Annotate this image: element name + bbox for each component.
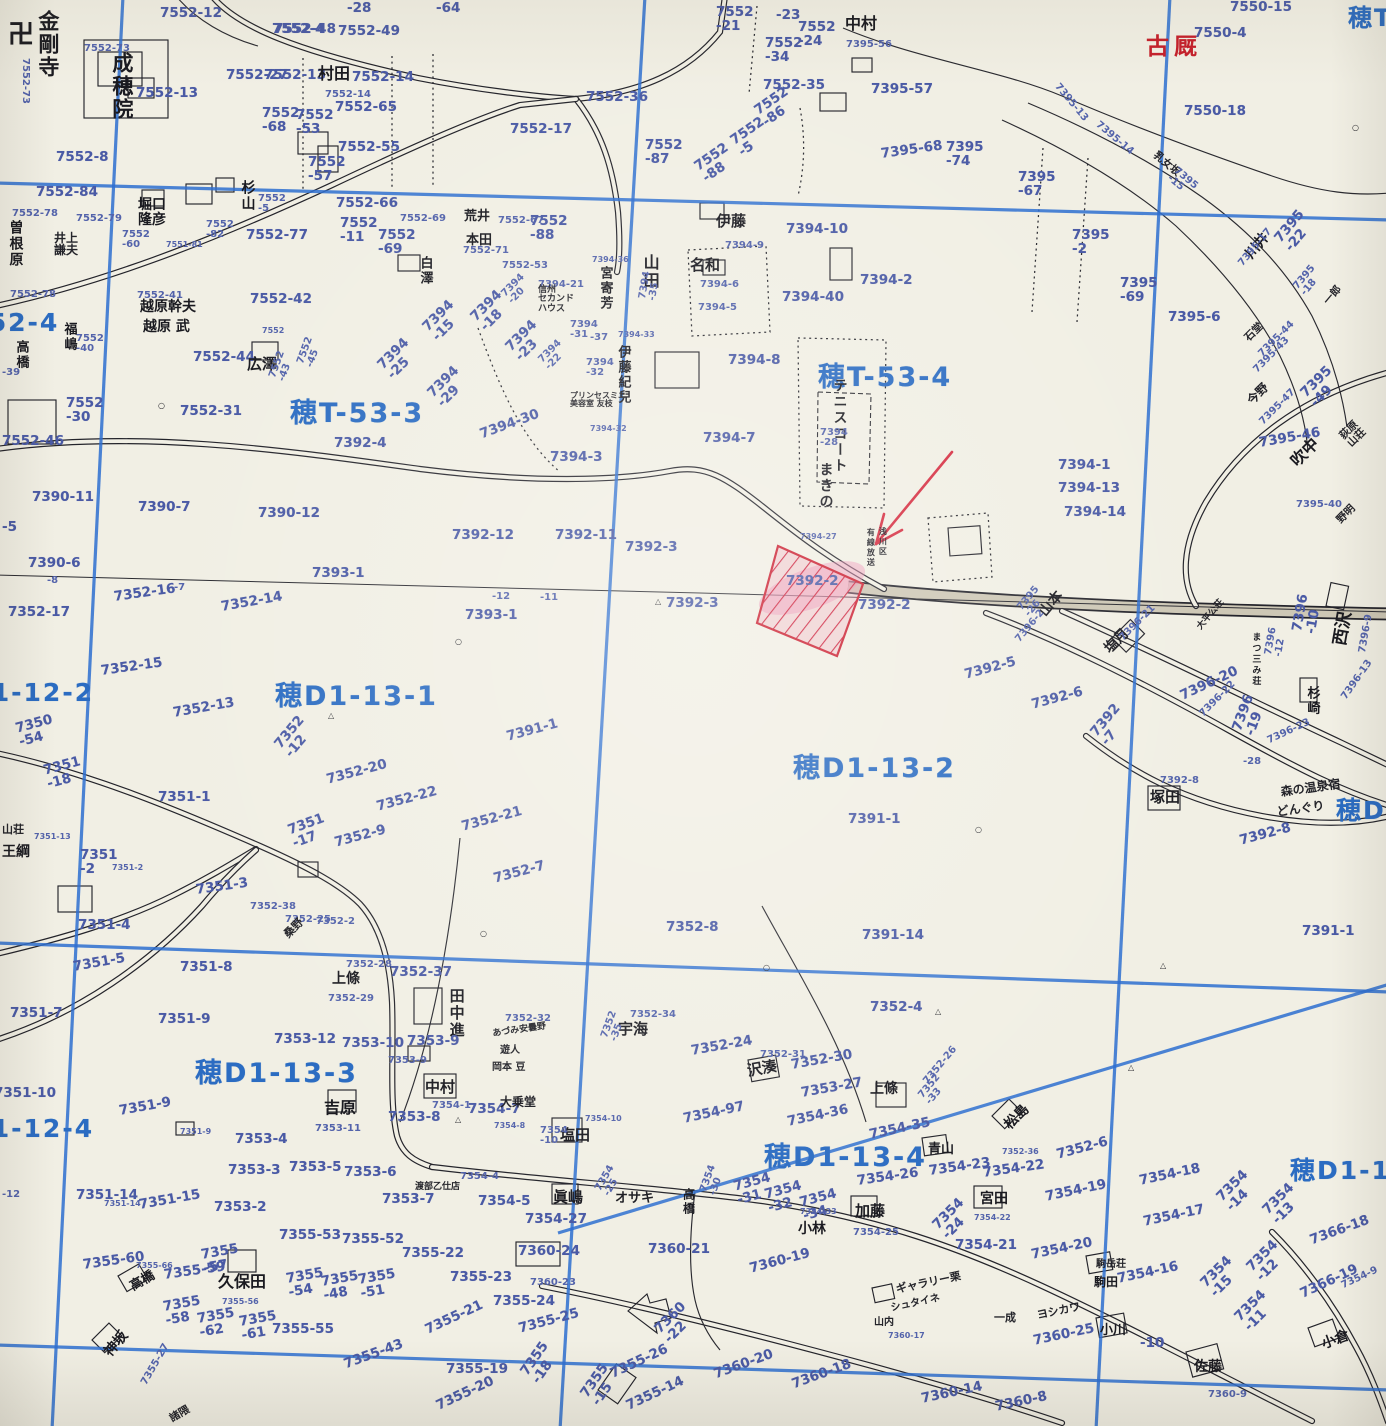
parcel-number-label: 7391-1 bbox=[505, 716, 559, 743]
owner-name-label: 浅川区 bbox=[878, 527, 886, 557]
cadastral-map: 卍金剛寺7552-73成穂院7552-737552-127552-47552-1… bbox=[0, 0, 1386, 1426]
parcel-number-label: 7360-21 bbox=[648, 1242, 710, 1256]
parcel-number-label: -23 bbox=[776, 8, 800, 22]
parcel-number-label: 7395 -49 bbox=[1298, 363, 1344, 409]
parcel-number-label: 7351-3 bbox=[195, 876, 249, 897]
parcel-number-label: 7354-22 bbox=[982, 1157, 1045, 1180]
parcel-number-label: 7392-8 bbox=[1238, 820, 1292, 847]
owner-name-label: 宮田 bbox=[980, 1192, 1008, 1207]
parcel-number-label: 7552-8 bbox=[56, 150, 109, 164]
parcel-number-label: 7353-10 bbox=[342, 1036, 404, 1050]
parcel-number-label: 7552 -11 bbox=[340, 216, 378, 244]
parcel-number-label: 7393-1 bbox=[312, 566, 365, 580]
owner-name-label: 白澤 bbox=[418, 256, 432, 286]
survey-mark: ○ bbox=[1352, 124, 1359, 132]
owner-name-label: 諸隈 bbox=[168, 1405, 192, 1425]
parcel-number-label: 7355-21 bbox=[423, 1298, 485, 1337]
parcel-number-label: 7396-21 bbox=[1118, 604, 1158, 644]
owner-name-label: 渡部乙仕店 bbox=[415, 1183, 460, 1192]
parcel-number-label: 7395 -67 bbox=[1018, 170, 1056, 198]
survey-mark: ○ bbox=[455, 638, 462, 646]
parcel-number-label: -12 bbox=[492, 592, 510, 602]
parcel-number-label: 7552-78 bbox=[12, 209, 58, 219]
parcel-number-label: 7552-36 bbox=[586, 90, 648, 104]
parcel-number-label: 7392-4 bbox=[334, 436, 387, 450]
parcel-number-label: 7360-17 bbox=[888, 1332, 925, 1340]
parcel-number-label: 7552 -60 bbox=[122, 230, 150, 251]
parcel-number-label: 7552 -57 bbox=[308, 155, 346, 183]
parcel-number-label: 7352-13 bbox=[172, 695, 235, 720]
zone-code-label: 穂D1-12-2 bbox=[0, 680, 94, 706]
parcel-number-label: 7350 -54 bbox=[14, 712, 58, 749]
owner-name-label: 神坂 bbox=[102, 1329, 131, 1360]
parcel-number-label: 7360-18 bbox=[790, 1357, 853, 1391]
parcel-number-label: 7395 -69 bbox=[1120, 276, 1158, 304]
parcel-number-label: 7354-20 bbox=[1030, 1235, 1094, 1262]
parcel-number-label: 7354 -12 bbox=[1244, 1237, 1290, 1283]
parcel-number-label: 7394-2 bbox=[860, 273, 913, 287]
parcel-number-label: 7395 -18 bbox=[1292, 264, 1326, 299]
parcel-number-label: 7550-15 bbox=[1230, 0, 1292, 14]
owner-name-label: 曽根原 bbox=[8, 220, 23, 268]
parcel-number-label: 7552-14 bbox=[352, 70, 414, 84]
parcel-number-label: 7352-15 bbox=[100, 655, 163, 678]
survey-mark: ○ bbox=[975, 826, 982, 834]
owner-name-label: 山内 bbox=[874, 1318, 894, 1328]
parcel-number-label: 7394-40 bbox=[782, 290, 844, 304]
owner-name-label: ギャラリー栗 bbox=[895, 1270, 962, 1295]
parcel-number-label: -39 bbox=[2, 368, 20, 378]
parcel-number-label: 7354-18 bbox=[1138, 1161, 1202, 1188]
parcel-number-label: 7394-30 bbox=[478, 407, 541, 441]
owner-name-label: 小林 bbox=[798, 1222, 826, 1237]
parcel-number-label: 7353-2 bbox=[214, 1200, 267, 1214]
parcel-number-label: 7394 -15 bbox=[420, 297, 466, 343]
parcel-number-label: 7390-12 bbox=[258, 506, 320, 520]
zone-code-label: 穂D1-12-4 bbox=[0, 1116, 94, 1142]
owner-name-label: 大平公荘 bbox=[1196, 598, 1226, 632]
parcel-number-label: 7552-66 bbox=[336, 196, 398, 210]
parcel-number-label: 7395-57 bbox=[871, 82, 933, 96]
parcel-number-label: 7351-4 bbox=[78, 918, 131, 932]
owner-name-label: シュタイネ bbox=[890, 1294, 941, 1315]
parcel-number-label: 7354 -14 bbox=[1214, 1167, 1260, 1213]
owner-name-label: 村田 bbox=[318, 66, 350, 83]
parcel-number-label: 7552-84 bbox=[36, 185, 98, 199]
parcel-number-label: 7392-12 bbox=[452, 528, 514, 542]
parcel-number-label: -12 bbox=[2, 1190, 20, 1200]
owner-name-label: 田中進 bbox=[448, 988, 464, 1039]
parcel-number-label: 7552-42 bbox=[250, 292, 312, 306]
parcel-number-label: 7366-18 bbox=[1308, 1213, 1371, 1247]
parcel-number-label: 7354 -15 bbox=[1198, 1253, 1244, 1299]
parcel-number-label: 7394-5 bbox=[698, 303, 737, 313]
parcel-number-label: 7395-68 bbox=[880, 138, 943, 161]
parcel-number-label: 7552-73 bbox=[20, 58, 30, 104]
parcel-number-label: 7353-4 bbox=[235, 1132, 288, 1146]
survey-mark: △ bbox=[455, 1116, 461, 1124]
parcel-number-label: 7394-14 bbox=[1064, 505, 1126, 519]
owner-name-label: 山荘 bbox=[2, 824, 24, 835]
parcel-number-label: 7552 -82 bbox=[206, 220, 234, 241]
parcel-number-label: 7396 -12 bbox=[1264, 627, 1289, 658]
owner-name-label: 信州 セカンド ハウス bbox=[538, 286, 574, 314]
parcel-number-label: 7552-53 bbox=[502, 261, 548, 271]
owner-name-label: 吉原 bbox=[324, 1100, 356, 1117]
parcel-number-label: 7355 -51 bbox=[357, 1266, 399, 1300]
owner-name-label: 荒井 bbox=[464, 210, 490, 224]
parcel-number-label: 7394-36 bbox=[592, 256, 629, 264]
owner-name-label: 井上 謙夫 bbox=[54, 232, 78, 257]
survey-mark: △ bbox=[1128, 1064, 1134, 1072]
parcel-number-label: 7396 -19 bbox=[1230, 693, 1269, 738]
parcel-number-label: -10 bbox=[1140, 1336, 1164, 1350]
parcel-number-label: 7351-9 bbox=[158, 1012, 211, 1026]
parcel-number-label: 7351-5 bbox=[72, 951, 126, 974]
parcel-number-label: 7392 -7 bbox=[1088, 701, 1134, 748]
parcel-number-label: 7351-13 bbox=[34, 833, 71, 841]
parcel-number-label: 7353-9 bbox=[407, 1034, 460, 1048]
parcel-number-label: 7354-5 bbox=[478, 1194, 531, 1208]
parcel-number-label: 7360-25 bbox=[1032, 1321, 1096, 1348]
parcel-number-label: 7552-31 bbox=[180, 404, 242, 418]
parcel-number-label: 7360-9 bbox=[1208, 1390, 1247, 1400]
parcel-number-label: 7394-8 bbox=[728, 353, 781, 367]
parcel-number-label: 7396-13 bbox=[1340, 658, 1375, 702]
parcel-number-label: 7360-23 bbox=[530, 1278, 576, 1288]
parcel-number-label: 7352-6 bbox=[1055, 1134, 1109, 1161]
parcel-number-label: 7394-3 bbox=[550, 450, 603, 464]
owner-name-label: 眞嶋 bbox=[553, 1190, 583, 1206]
owner-name-label: 卍 bbox=[8, 22, 34, 49]
owner-name-label: 伊藤 bbox=[716, 214, 746, 230]
parcel-number-label: 7352-37 bbox=[390, 965, 452, 979]
parcel-number-label: 7353-3 bbox=[228, 1163, 281, 1177]
parcel-number-label: 7552 -24 bbox=[798, 20, 836, 48]
parcel-number-label: 7395-56 bbox=[846, 40, 892, 50]
parcel-number-label: 7551-81 bbox=[166, 241, 203, 249]
parcel-number-label: 7394-13 bbox=[1058, 481, 1120, 495]
parcel-number-label: 7354 -24 bbox=[930, 1195, 976, 1241]
parcel-number-label: 7353-12 bbox=[274, 1032, 336, 1046]
parcel-number-label: 7395-13 bbox=[1052, 82, 1089, 124]
owner-name-label: 小倉 bbox=[1320, 1328, 1351, 1351]
owner-name-label: テニスコート bbox=[832, 378, 847, 474]
owner-name-label: 杉山 bbox=[240, 180, 255, 212]
parcel-number-label: 7351-10 bbox=[0, 1086, 56, 1100]
parcel-number-label: 7355-20 bbox=[434, 1374, 496, 1413]
parcel-number-label: 7354 -11 bbox=[1232, 1287, 1278, 1333]
owner-name-label: 一郎 bbox=[1322, 284, 1344, 307]
parcel-number-label: 7394 -35 bbox=[638, 271, 663, 302]
parcel-number-label: 7354-35 bbox=[868, 1115, 932, 1142]
parcel-number-label: 7353-9 bbox=[388, 1056, 427, 1066]
parcel-number-label: 7394 -29 bbox=[425, 363, 471, 409]
owner-name-label: 今野 bbox=[1245, 381, 1271, 407]
parcel-number-label: 7394-33 bbox=[618, 331, 655, 339]
parcel-number-label: 7395 -2 bbox=[1072, 228, 1110, 256]
owner-name-label: 堀口 隆彦 bbox=[138, 198, 166, 227]
parcel-number-label: 7552-77 bbox=[246, 228, 308, 242]
owner-name-label: オサキ bbox=[615, 1192, 654, 1206]
parcel-number-label: 7552-49 bbox=[338, 24, 400, 38]
parcel-number-label: 7352-36 bbox=[1002, 1148, 1039, 1156]
parcel-number-label: 7355-14 bbox=[624, 1374, 686, 1413]
zone-code-label: 穂T bbox=[1348, 6, 1386, 31]
parcel-number-label: 7391-1 bbox=[1302, 924, 1355, 938]
parcel-number-label: 7351 -18 bbox=[42, 754, 86, 791]
parcel-number-label: 7552 bbox=[262, 327, 284, 335]
parcel-number-label: 7391-14 bbox=[862, 928, 924, 942]
parcel-number-label: 7355-22 bbox=[402, 1246, 464, 1260]
parcel-number-label: 7353-11 bbox=[315, 1124, 361, 1134]
parcel-number-label: 7353-5 bbox=[289, 1160, 342, 1174]
parcel-number-label: 7394-10 bbox=[786, 222, 848, 236]
zone-code-label: 穂D1-13-3 bbox=[195, 1060, 358, 1088]
parcel-number-label: 7552-78 bbox=[10, 290, 56, 300]
parcel-number-label: 7552-48 bbox=[274, 22, 336, 36]
parcel-number-label: 7355-55 bbox=[272, 1322, 334, 1336]
parcel-number-label: 7394-7 bbox=[703, 431, 756, 445]
parcel-number-label: 7352-4 bbox=[870, 1000, 923, 1014]
owner-name-label: 越原 武 bbox=[143, 320, 190, 335]
parcel-number-label: 7392-3 bbox=[666, 596, 719, 610]
parcel-number-label: 7552 -53 bbox=[296, 108, 334, 136]
owner-name-label: 久保田 bbox=[218, 1274, 266, 1291]
parcel-number-label: 7352-22 bbox=[375, 784, 438, 814]
parcel-number-label: 7390-6 bbox=[28, 556, 81, 570]
survey-mark: △ bbox=[328, 712, 334, 720]
parcel-number-label: 7394-32 bbox=[590, 425, 627, 433]
parcel-number-label: 7354-22 bbox=[974, 1214, 1011, 1222]
parcel-number-label: 7394-6 bbox=[700, 280, 739, 290]
parcel-number-label: 7352-34 bbox=[630, 1010, 676, 1020]
parcel-number-label: 7552-13 bbox=[136, 86, 198, 100]
parcel-number-label: 7354-19 bbox=[1044, 1177, 1108, 1204]
parcel-number-label: 7354 -10 bbox=[540, 1126, 568, 1147]
parcel-number-label: 7396 -10 bbox=[1290, 593, 1324, 635]
parcel-number-label: 7351-9 bbox=[118, 1095, 172, 1118]
map-labels-layer: 卍金剛寺7552-73成穂院7552-737552-127552-47552-1… bbox=[0, 0, 1386, 1426]
parcel-number-label: 7394 -28 bbox=[820, 428, 848, 449]
owner-name-label: まきの bbox=[818, 462, 833, 510]
parcel-number-label: 7355-52 bbox=[342, 1232, 404, 1246]
parcel-number-label: 7354 -30 bbox=[699, 1164, 728, 1197]
parcel-number-label: 7351 -17 bbox=[286, 811, 331, 850]
owner-name-label: 沢湊 bbox=[746, 1059, 778, 1080]
parcel-number-label: 7352-28 bbox=[346, 960, 392, 970]
parcel-number-label: 7352-7 bbox=[492, 858, 546, 885]
parcel-number-label: 7355-19 bbox=[446, 1362, 508, 1376]
parcel-number-label: 7354-17 bbox=[1142, 1202, 1206, 1229]
parcel-number-label: 7352-29 bbox=[328, 994, 374, 1004]
parcel-number-label: 7355-53 bbox=[279, 1228, 341, 1242]
parcel-number-label: 7353-6 bbox=[344, 1165, 397, 1179]
parcel-number-label: 7352-38 bbox=[250, 902, 296, 912]
owner-name-label: 荻原 山荘 bbox=[1338, 419, 1368, 449]
parcel-number-label: 7552 -45 bbox=[296, 336, 325, 369]
owner-name-label: 高橋 bbox=[14, 340, 28, 370]
zone-code-label: 穂D1-1 bbox=[1290, 1158, 1386, 1184]
parcel-number-label: 7354-10 bbox=[585, 1115, 622, 1123]
parcel-number-label: 7355-23 bbox=[450, 1270, 512, 1284]
owner-name-label: あづみ安曇野 bbox=[492, 1022, 547, 1039]
owner-name-label: 上條 bbox=[870, 1082, 898, 1097]
owner-name-label: 有線放送 bbox=[866, 528, 874, 568]
parcel-number-label: 7352 -35 bbox=[600, 1010, 629, 1043]
parcel-number-label: 7392-6 bbox=[1030, 684, 1084, 711]
parcel-number-label: 7552 -69 bbox=[378, 228, 416, 256]
owner-name-label: 王綱 bbox=[2, 845, 30, 860]
zone-code-label: 穂T-52-4 bbox=[0, 310, 59, 336]
parcel-number-label: 7552 -30 bbox=[66, 396, 104, 424]
parcel-number-label: 7351-8 bbox=[180, 960, 233, 974]
parcel-number-label: 7360-14 bbox=[920, 1379, 984, 1406]
parcel-number-label: -7 bbox=[174, 583, 185, 593]
owner-name-label: 成穂院 bbox=[110, 52, 132, 121]
survey-mark: △ bbox=[935, 1008, 941, 1016]
owner-name-label: 小川 bbox=[1100, 1324, 1126, 1338]
zone-code-label: 穂T-53-3 bbox=[290, 400, 424, 428]
parcel-number-label: 7360 -22 bbox=[652, 1299, 698, 1345]
survey-mark: △ bbox=[655, 598, 661, 606]
owner-name-label: 上條 bbox=[332, 972, 360, 987]
parcel-number-label: 7552-17 bbox=[510, 122, 572, 136]
parcel-number-label: -28 bbox=[1243, 757, 1261, 767]
owner-name-label: 塚田 bbox=[1150, 790, 1180, 806]
parcel-number-label: 7552 -88 bbox=[530, 214, 568, 242]
parcel-number-label: 7552-65 bbox=[335, 100, 397, 114]
owner-name-label: 一成 bbox=[994, 1312, 1016, 1323]
parcel-number-label: 7394-1 bbox=[1058, 458, 1111, 472]
parcel-number-label: 7392-11 bbox=[555, 528, 617, 542]
parcel-number-label: 7392-8 bbox=[1160, 776, 1199, 786]
parcel-number-label: 7351-9 bbox=[180, 1128, 211, 1136]
parcel-number-label: 7354-33 bbox=[800, 1208, 837, 1216]
parcel-number-label: 7550-18 bbox=[1184, 104, 1246, 118]
parcel-number-label: 7352-9 bbox=[333, 822, 387, 849]
parcel-number-label: 7352-8 bbox=[666, 920, 719, 934]
parcel-number-label: 7552-12 bbox=[160, 6, 222, 20]
zone-code-label: 穂D1-13-2 bbox=[793, 755, 956, 783]
owner-name-label: 森の温泉宿 bbox=[1280, 778, 1341, 799]
owner-name-label: ヨシカワ bbox=[1036, 1301, 1081, 1321]
owner-name-label: どんぐり bbox=[1276, 799, 1325, 818]
parcel-number-label: -28 bbox=[347, 1, 371, 15]
parcel-number-label: 7360-20 bbox=[712, 1347, 775, 1381]
owner-name-label: まつ三み荘 bbox=[1250, 632, 1259, 687]
parcel-number-label: 7352-14 bbox=[220, 589, 283, 614]
parcel-number-label: 7392-3 bbox=[625, 540, 678, 554]
parcel-number-label: 7550-4 bbox=[1194, 26, 1247, 40]
owner-name-label: 金剛寺 bbox=[36, 10, 58, 79]
owner-name-label: 名和 bbox=[690, 258, 720, 274]
parcel-number-label: 7360-8 bbox=[994, 1389, 1048, 1414]
parcel-number-label: 7390-11 bbox=[32, 490, 94, 504]
parcel-number-label: 7354-36 bbox=[786, 1102, 850, 1129]
parcel-number-label: 7352-21 bbox=[460, 804, 523, 834]
owner-name-label: 宮寄芳 bbox=[598, 266, 612, 311]
owner-name-label: 越原幹夫 bbox=[140, 300, 196, 315]
parcel-number-label: 7395-14 bbox=[1093, 120, 1135, 157]
parcel-number-label: 7353-7 bbox=[382, 1192, 435, 1206]
parcel-number-label: 7353-27 bbox=[800, 1075, 863, 1100]
owner-name-label: 青山 bbox=[928, 1143, 954, 1157]
parcel-number-label: 7392-2 bbox=[786, 574, 839, 588]
owner-name-label: プリンセスミニ 美容室 友枝 bbox=[570, 392, 626, 409]
parcel-number-label: -8 bbox=[47, 576, 58, 586]
parcel-number-label: 7354 -34 bbox=[798, 1186, 842, 1223]
parcel-number-label: 7352-16 bbox=[113, 581, 176, 604]
owner-name-label: 遊人 bbox=[500, 1046, 520, 1056]
parcel-number-label: 7354-21 bbox=[955, 1238, 1017, 1252]
parcel-number-label: 7392-2 bbox=[858, 598, 911, 612]
parcel-number-label: 7552-13 bbox=[264, 68, 326, 82]
parcel-number-label: 7354-25 bbox=[853, 1228, 899, 1238]
parcel-number-label: 7552-46 bbox=[2, 434, 64, 448]
parcel-number-label: 7360-19 bbox=[748, 1246, 811, 1276]
parcel-number-label: 7355-24 bbox=[493, 1294, 555, 1308]
parcel-number-label: 7351-14 bbox=[104, 1200, 141, 1208]
owner-name-label: 杉崎 bbox=[1305, 686, 1319, 716]
parcel-number-label: 7354-4 bbox=[460, 1172, 499, 1182]
parcel-number-label: 7395-40 bbox=[1296, 500, 1342, 510]
survey-mark: ○ bbox=[480, 930, 487, 938]
parcel-number-label: -37 bbox=[590, 333, 608, 343]
parcel-number-label: 7355-26 bbox=[608, 1342, 670, 1381]
parcel-number-label: 7395 -74 bbox=[946, 140, 984, 168]
parcel-number-label: 7355 -62 bbox=[196, 1305, 238, 1339]
parcel-number-label: 7394-9 bbox=[725, 241, 764, 251]
parcel-number-label: 7354 -13 bbox=[1260, 1180, 1306, 1226]
owner-name-label: 松島 bbox=[1002, 1102, 1032, 1132]
parcel-number-label: 7351-2 bbox=[112, 864, 143, 872]
owner-name-label: 中村 bbox=[425, 1080, 455, 1096]
parcel-number-label: 7355 -18 bbox=[518, 1339, 563, 1386]
parcel-number-label: 7390-7 bbox=[138, 500, 191, 514]
parcel-number-label: 7394 -32 bbox=[586, 358, 614, 379]
parcel-number-label: 7353-8 bbox=[388, 1110, 441, 1124]
parcel-number-label: 7552 -87 bbox=[645, 138, 683, 166]
zone-code-label: 穂D1 bbox=[1336, 798, 1386, 824]
parcel-number-label: 7360-24 bbox=[518, 1244, 580, 1258]
parcel-number-label: -5 bbox=[2, 520, 17, 534]
parcel-number-label: 7552 -34 bbox=[765, 36, 803, 64]
parcel-number-label: 7352 -12 bbox=[272, 713, 318, 760]
parcel-number-label: 7552-69 bbox=[400, 214, 446, 224]
owner-name-label: 加藤 bbox=[855, 1204, 885, 1220]
parcel-number-label: 7351-7 bbox=[10, 1006, 63, 1020]
owner-name-label: 岡本 豆 bbox=[492, 1063, 525, 1073]
survey-mark: ○ bbox=[158, 402, 165, 410]
owner-name-label: 石堂 bbox=[1243, 321, 1266, 344]
survey-mark: △ bbox=[1160, 962, 1166, 970]
parcel-number-label: -11 bbox=[540, 593, 558, 603]
parcel-number-label: -64 bbox=[436, 1, 460, 15]
parcel-number-label: 7355 -57 bbox=[200, 1241, 242, 1275]
parcel-number-label: 7394-27 bbox=[800, 533, 837, 541]
parcel-number-label: 7354-8 bbox=[494, 1122, 525, 1130]
parcel-number-label: 7552 -88 bbox=[692, 140, 739, 185]
owner-name-label: 駒田 bbox=[1094, 1276, 1118, 1288]
zone-code-label: 穂D1-13-1 bbox=[275, 683, 438, 711]
owner-name-label: 高橋 bbox=[682, 1188, 694, 1216]
survey-mark: ○ bbox=[763, 964, 770, 972]
parcel-number-label: 7354-97 bbox=[682, 1099, 746, 1126]
owner-name-label: 佐藤 bbox=[1194, 1360, 1222, 1375]
parcel-number-label: 7552-71 bbox=[463, 246, 509, 256]
parcel-number-label: 7552-55 bbox=[338, 140, 400, 154]
